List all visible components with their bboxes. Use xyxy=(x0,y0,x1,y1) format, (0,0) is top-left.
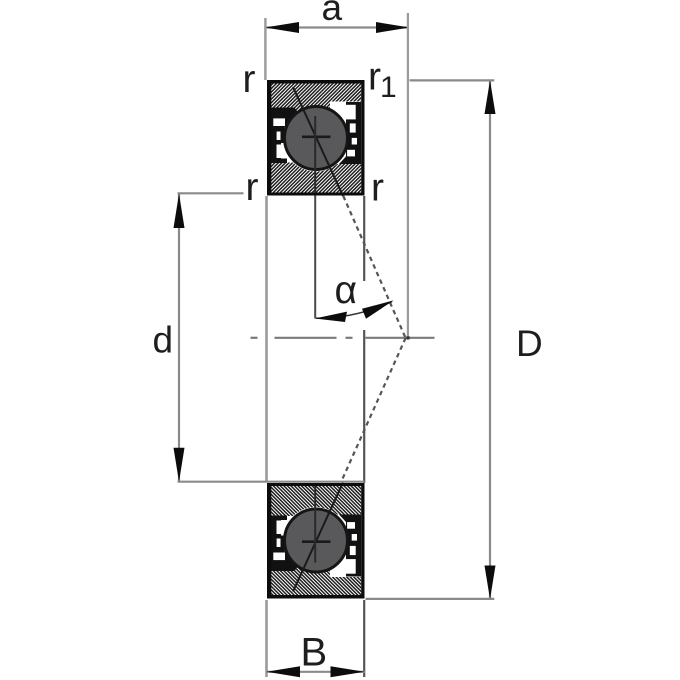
svg-text:D: D xyxy=(516,323,543,364)
svg-text:r: r xyxy=(246,166,259,209)
svg-text:a: a xyxy=(322,0,343,28)
svg-text:d: d xyxy=(153,320,174,361)
svg-text:r: r xyxy=(371,166,384,209)
svg-text:1: 1 xyxy=(380,71,397,104)
svg-text:α: α xyxy=(335,269,358,312)
svg-text:r: r xyxy=(243,58,256,101)
svg-text:B: B xyxy=(301,631,328,675)
